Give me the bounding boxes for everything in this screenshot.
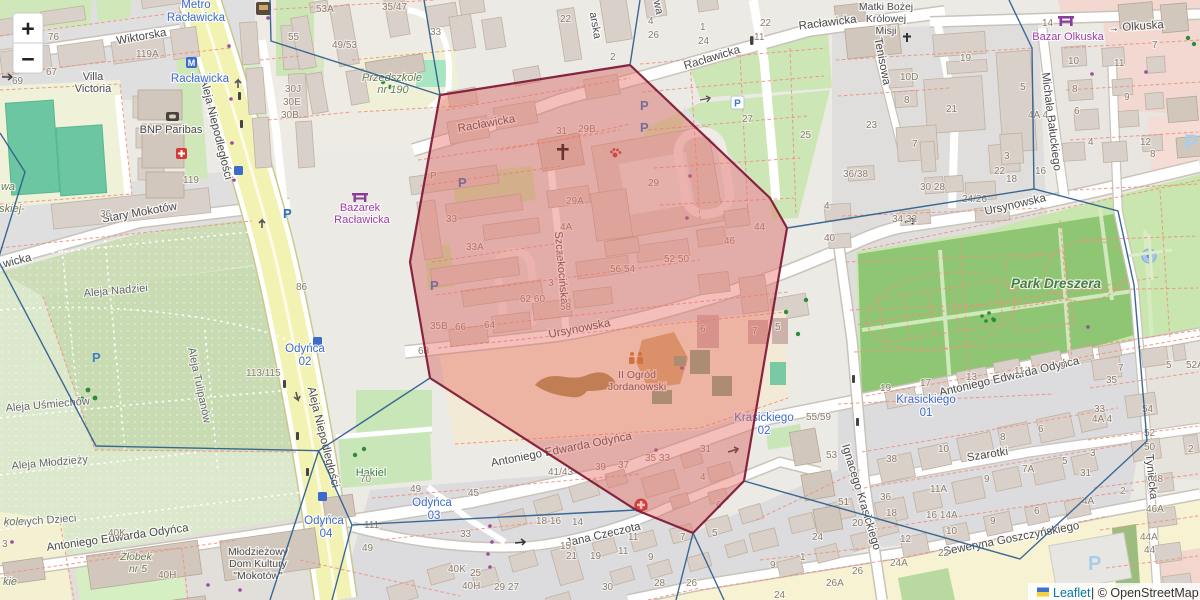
svg-text:119: 119: [183, 175, 199, 186]
svg-text:3: 3: [1004, 151, 1010, 162]
svg-text:6: 6: [1074, 106, 1080, 117]
svg-text:28: 28: [654, 578, 666, 589]
svg-text:9: 9: [984, 474, 990, 485]
svg-text:40K: 40K: [448, 564, 466, 575]
svg-text:70: 70: [360, 474, 372, 485]
svg-text:Racławicka: Racławicka: [171, 73, 230, 85]
svg-text:22: 22: [760, 18, 772, 29]
svg-text:9: 9: [1124, 92, 1130, 103]
svg-text:53: 53: [826, 450, 838, 461]
svg-text:Krasickiego: Krasickiego: [896, 394, 955, 406]
svg-text:01: 01: [920, 407, 933, 419]
svg-text:Przedszkole: Przedszkole: [362, 72, 422, 84]
svg-text:M: M: [188, 58, 196, 68]
svg-text:18: 18: [1006, 174, 1018, 185]
svg-text:29 27: 29 27: [494, 582, 519, 593]
svg-text:18: 18: [886, 508, 898, 519]
svg-text:40H: 40H: [158, 570, 176, 581]
svg-text:21: 21: [946, 104, 958, 115]
svg-text:4: 4: [824, 201, 830, 212]
svg-text:40H: 40H: [462, 581, 480, 592]
svg-text:3: 3: [1090, 448, 1096, 459]
svg-text:24: 24: [774, 590, 786, 600]
svg-text:nr 190: nr 190: [377, 84, 409, 96]
svg-text:46A: 46A: [1146, 504, 1164, 515]
svg-text:7A: 7A: [1022, 464, 1035, 475]
svg-text:24A: 24A: [890, 558, 908, 569]
svg-text:Odyńca: Odyńca: [412, 497, 452, 509]
svg-text:4A 4: 4A 4: [1092, 414, 1112, 425]
svg-text:36: 36: [100, 209, 112, 220]
svg-text:52A: 52A: [1186, 360, 1200, 371]
svg-text:Bazarek: Bazarek: [340, 202, 381, 214]
svg-text:kie: kie: [3, 576, 17, 588]
svg-text:26A: 26A: [826, 578, 844, 589]
svg-text:76: 76: [48, 32, 60, 43]
svg-text:31: 31: [1080, 468, 1092, 479]
svg-text:"Mokotów": "Mokotów": [233, 570, 283, 582]
svg-text:17: 17: [920, 378, 932, 389]
svg-text:9: 9: [1060, 361, 1066, 372]
svg-text:30E: 30E: [283, 97, 301, 108]
svg-text:9: 9: [770, 560, 776, 571]
svg-text:30: 30: [602, 582, 614, 593]
svg-text:36: 36: [880, 492, 892, 503]
svg-text:12: 12: [1140, 137, 1152, 148]
svg-text:P: P: [283, 206, 292, 221]
svg-text:22: 22: [994, 166, 1006, 177]
svg-text:1: 1: [800, 552, 806, 563]
svg-text:2: 2: [1120, 486, 1126, 497]
svg-text:Metro: Metro: [181, 0, 210, 11]
svg-text:49: 49: [410, 484, 422, 495]
svg-text:30B: 30B: [281, 110, 299, 121]
svg-text:+: +: [21, 16, 34, 42]
svg-text:Odyńca: Odyńca: [285, 343, 325, 355]
svg-text:02: 02: [299, 356, 312, 368]
svg-text:10: 10: [938, 444, 950, 455]
svg-text:| © OpenStreetMap: | © OpenStreetMap: [1091, 586, 1199, 600]
svg-text:P: P: [1088, 553, 1101, 575]
svg-text:Park Dreszera: Park Dreszera: [1011, 276, 1102, 291]
svg-text:11: 11: [628, 532, 639, 543]
svg-text:20: 20: [852, 518, 864, 529]
svg-text:35/47: 35/47: [382, 2, 407, 13]
svg-text:1: 1: [700, 22, 706, 33]
svg-text:11: 11: [754, 32, 765, 43]
svg-text:3: 3: [2, 539, 8, 550]
svg-text:35: 35: [1106, 375, 1118, 386]
svg-text:30 28: 30 28: [920, 182, 945, 193]
svg-text:Dom Kultury: Dom Kultury: [229, 558, 288, 570]
svg-text:BNP Paribas: BNP Paribas: [140, 124, 203, 136]
svg-text:36/38: 36/38: [843, 169, 868, 180]
svg-text:19: 19: [590, 551, 602, 562]
svg-text:44A: 44A: [1140, 532, 1158, 543]
svg-text:Racławicka: Racławicka: [334, 214, 391, 226]
svg-text:22: 22: [938, 548, 950, 559]
svg-text:12: 12: [900, 534, 912, 545]
svg-text:P: P: [734, 99, 741, 110]
svg-text:kole: kole: [4, 516, 24, 528]
svg-text:18 16: 18 16: [536, 516, 561, 527]
svg-text:11A: 11A: [930, 484, 947, 495]
svg-text:5: 5: [1020, 82, 1026, 93]
svg-text:10: 10: [1068, 56, 1080, 67]
svg-text:10D: 10D: [900, 72, 918, 83]
svg-text:4: 4: [648, 16, 654, 27]
svg-text:11: 11: [618, 546, 629, 557]
svg-text:Młodzieżowy: Młodzieżowy: [228, 546, 289, 558]
svg-text:7: 7: [912, 139, 918, 150]
svg-text:8: 8: [1072, 84, 1078, 95]
svg-text:7: 7: [680, 532, 686, 543]
svg-text:−: −: [21, 46, 34, 72]
svg-text:8: 8: [1150, 149, 1156, 160]
svg-text:16 14A: 16 14A: [926, 510, 958, 521]
svg-text:49: 49: [362, 543, 374, 554]
svg-text:34 32: 34 32: [892, 214, 917, 225]
svg-text:33: 33: [430, 27, 442, 38]
svg-text:53A: 53A: [316, 4, 334, 15]
svg-text:6: 6: [1038, 424, 1044, 435]
svg-text:02: 02: [758, 425, 771, 437]
svg-text:23: 23: [866, 120, 878, 131]
svg-text:25: 25: [470, 568, 482, 579]
svg-text:24: 24: [812, 532, 824, 543]
svg-text:10: 10: [946, 526, 958, 537]
svg-text:Racławicka: Racławicka: [167, 12, 226, 24]
svg-text:86: 86: [296, 282, 308, 293]
svg-text:14: 14: [572, 517, 584, 528]
svg-text:40: 40: [824, 233, 836, 244]
svg-text:21: 21: [566, 551, 578, 562]
svg-text:11: 11: [1014, 366, 1025, 377]
svg-text:51: 51: [838, 497, 850, 508]
svg-text:4: 4: [1088, 137, 1094, 148]
svg-text:7: 7: [1152, 40, 1158, 51]
svg-text:30J: 30J: [285, 84, 301, 95]
svg-text:111: 111: [364, 520, 380, 531]
svg-text:26: 26: [648, 30, 660, 41]
svg-text:49/53: 49/53: [332, 40, 357, 51]
svg-text:11: 11: [1114, 58, 1125, 69]
svg-text:48: 48: [1152, 474, 1164, 485]
svg-text:Bazar Olkuska: Bazar Olkuska: [1032, 31, 1104, 43]
svg-text:9: 9: [648, 552, 654, 563]
svg-text:5: 5: [775, 322, 781, 333]
svg-text:P: P: [1184, 130, 1199, 155]
svg-text:119A: 119A: [136, 49, 159, 60]
svg-text:113/115: 113/115: [246, 368, 281, 379]
svg-text:5: 5: [1062, 456, 1068, 467]
svg-text:Odyńca: Odyńca: [304, 515, 344, 527]
svg-text:8: 8: [1000, 432, 1006, 443]
svg-text:16: 16: [1035, 166, 1047, 177]
svg-text:4A: 4A: [1082, 496, 1095, 507]
svg-text:26: 26: [686, 578, 698, 589]
svg-text:P: P: [92, 350, 101, 365]
svg-text:19: 19: [960, 53, 972, 64]
svg-text:9: 9: [990, 516, 996, 527]
svg-text:25: 25: [800, 130, 812, 141]
svg-text:24: 24: [698, 36, 710, 47]
svg-text:Villa: Villa: [83, 71, 104, 83]
svg-text:40K: 40K: [108, 528, 126, 539]
svg-text:5: 5: [712, 528, 718, 539]
svg-text:6: 6: [1034, 506, 1040, 517]
svg-text:33: 33: [460, 529, 472, 540]
svg-text:55: 55: [288, 32, 300, 43]
svg-text:50: 50: [1144, 442, 1156, 453]
svg-text:Królowej: Królowej: [866, 13, 906, 25]
svg-text:14: 14: [1042, 18, 1054, 29]
svg-text:nr 5: nr 5: [129, 563, 147, 575]
svg-text:27: 27: [742, 114, 754, 125]
svg-text:45: 45: [468, 488, 480, 499]
svg-text:wa: wa: [1, 181, 15, 193]
svg-text:04: 04: [320, 528, 333, 540]
svg-text:67: 67: [46, 67, 58, 78]
svg-text:19: 19: [880, 383, 892, 394]
svg-text:13: 13: [966, 372, 978, 383]
svg-text:2: 2: [610, 52, 616, 63]
svg-text:38: 38: [886, 454, 898, 465]
svg-text:26: 26: [852, 566, 864, 577]
svg-text:7: 7: [1118, 363, 1124, 374]
svg-text:Victoria: Victoria: [75, 83, 112, 95]
svg-text:5: 5: [1166, 360, 1172, 371]
svg-text:Żłobek: Żłobek: [119, 551, 152, 563]
svg-text:Leaflet: Leaflet: [1053, 586, 1091, 600]
svg-text:4A 4: 4A 4: [1028, 110, 1048, 121]
svg-text:Matki Bożej: Matki Bożej: [859, 1, 913, 13]
svg-text:22: 22: [560, 14, 572, 25]
svg-text:2: 2: [1188, 444, 1194, 455]
svg-text:Misji: Misji: [876, 25, 897, 37]
svg-text:44: 44: [1144, 545, 1156, 556]
svg-text:69: 69: [12, 76, 24, 87]
svg-text:55/59: 55/59: [806, 412, 831, 423]
svg-text:8: 8: [904, 95, 910, 106]
